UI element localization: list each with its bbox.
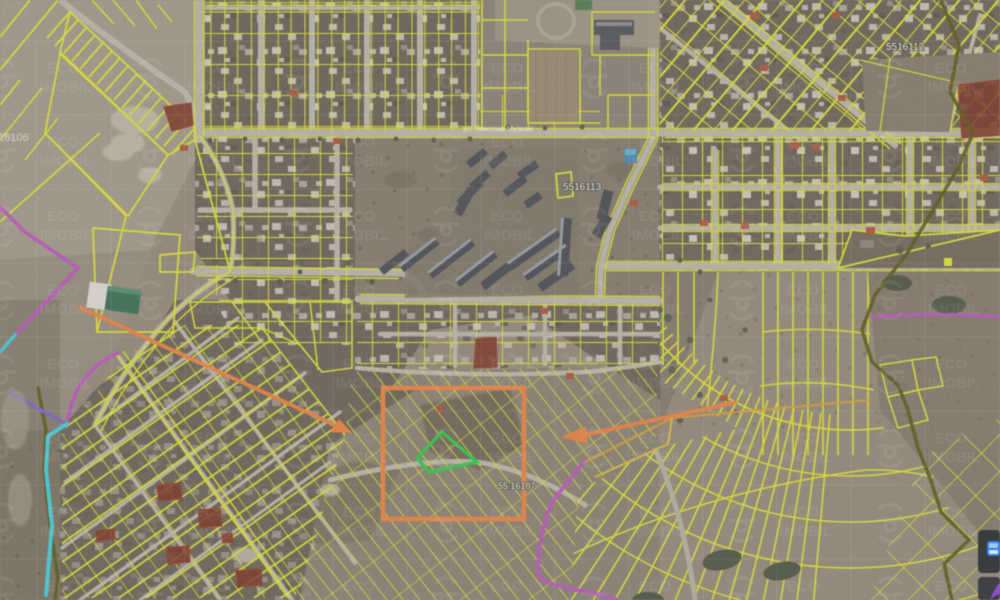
svg-text:IMOBIL: IMOBIL [632,227,685,244]
svg-text:ECO: ECO [491,504,524,521]
svg-text:ECO: ECO [787,134,820,151]
svg-text:IMOBIL: IMOBIL [928,523,981,540]
svg-text:ECO: ECO [343,208,376,225]
svg-text:5516112: 5516112 [886,42,925,53]
svg-text:IMOBIL: IMOBIL [928,79,981,96]
svg-text:IMOBIL: IMOBIL [780,153,833,170]
svg-text:ECO: ECO [935,282,968,299]
svg-text:ECO: ECO [639,504,672,521]
svg-text:ECO: ECO [343,430,376,447]
svg-text:ECO: ECO [787,208,820,225]
svg-text:ECO: ECO [935,356,968,373]
svg-text:IMOBIL: IMOBIL [40,375,93,392]
svg-text:IMOBIL: IMOBIL [484,79,537,96]
svg-text:ECO: ECO [639,430,672,447]
svg-text:IMOBIL: IMOBIL [632,449,685,466]
svg-text:IMOBIL: IMOBIL [336,301,389,318]
svg-text:ECO: ECO [491,430,524,447]
svg-text:ECO: ECO [787,60,820,77]
svg-text:IMOBIL: IMOBIL [336,79,389,96]
svg-text:IMOBIL: IMOBIL [928,153,981,170]
svg-text:ECO: ECO [491,134,524,151]
svg-text:ECO: ECO [787,578,820,595]
svg-text:IMOBIL: IMOBIL [484,301,537,318]
svg-text:IMOBIL: IMOBIL [40,227,93,244]
svg-text:ECO: ECO [935,208,968,225]
svg-text:ECO: ECO [47,60,80,77]
svg-text:IMOBIL: IMOBIL [632,301,685,318]
svg-text:ECO: ECO [47,430,80,447]
svg-text:ECO: ECO [343,60,376,77]
svg-text:IMOBIL: IMOBIL [928,301,981,318]
svg-text:IMOBIL: IMOBIL [780,301,833,318]
svg-text:IMOBIL: IMOBIL [484,449,537,466]
svg-text:ECO: ECO [47,282,80,299]
svg-text:IMOBIL: IMOBIL [40,79,93,96]
svg-text:5516113: 5516113 [563,182,602,193]
svg-text:55:16107: 55:16107 [498,481,536,491]
svg-text:ECO: ECO [195,60,228,77]
svg-text:ECO: ECO [935,504,968,521]
svg-text:IMOBIL: IMOBIL [632,375,685,392]
svg-text:ул. Николая Музыки: ул. Николая Музыки [463,124,533,133]
svg-text:IMOBIL: IMOBIL [780,79,833,96]
svg-text:ECO: ECO [343,134,376,151]
svg-text:ECO: ECO [195,504,228,521]
svg-text:IMOBIL: IMOBIL [336,153,389,170]
svg-text:IMOBIL: IMOBIL [336,227,389,244]
svg-text:ECO: ECO [491,282,524,299]
svg-text:ECO: ECO [787,282,820,299]
svg-text:ECO: ECO [787,504,820,521]
svg-text:ECO: ECO [639,578,672,595]
svg-text:IMOBIL: IMOBIL [632,523,685,540]
svg-text:IMOBIL: IMOBIL [336,449,389,466]
svg-text:IMOBIL: IMOBIL [188,227,241,244]
svg-text:IMOBIL: IMOBIL [484,375,537,392]
svg-text:ECO: ECO [343,356,376,373]
svg-text:ECO: ECO [935,578,968,595]
svg-text:IMOBIL: IMOBIL [780,227,833,244]
svg-text:ECO: ECO [343,282,376,299]
svg-text:IMOBIL: IMOBIL [780,449,833,466]
svg-text:IMOBIL: IMOBIL [484,523,537,540]
svg-text:ECO: ECO [787,356,820,373]
svg-text:IMOBIL: IMOBIL [188,301,241,318]
svg-text:IMOBIL: IMOBIL [632,79,685,96]
svg-text:IMOBIL: IMOBIL [40,449,93,466]
svg-text:ECO: ECO [935,60,968,77]
svg-text:IMOBIL: IMOBIL [484,153,537,170]
svg-text:ECO: ECO [47,134,80,151]
svg-text:IMOBIL: IMOBIL [40,153,93,170]
svg-text:IMOBIL: IMOBIL [928,375,981,392]
svg-text:ECO: ECO [935,430,968,447]
svg-text:IMOBIL: IMOBIL [188,375,241,392]
svg-text:ECO: ECO [639,356,672,373]
svg-text:ECO: ECO [47,578,80,595]
svg-text:ECO: ECO [195,356,228,373]
svg-text:ECO: ECO [195,208,228,225]
svg-text:ECO: ECO [195,282,228,299]
svg-text:ECO: ECO [639,282,672,299]
svg-text:IMOBIL: IMOBIL [780,375,833,392]
svg-text:ECO: ECO [195,430,228,447]
svg-text:IMOBIL: IMOBIL [40,523,93,540]
svg-text:16106: 16106 [0,132,29,144]
svg-text:ECO: ECO [639,208,672,225]
svg-text:IMOBIL: IMOBIL [188,449,241,466]
svg-text:ECO: ECO [491,578,524,595]
svg-text:ECO: ECO [491,356,524,373]
svg-text:ECO: ECO [639,60,672,77]
svg-text:ECO: ECO [935,134,968,151]
svg-text:IMOBIL: IMOBIL [40,301,93,318]
svg-text:IMOBIL: IMOBIL [632,153,685,170]
svg-text:IMOBIL: IMOBIL [188,79,241,96]
svg-text:IMOBIL: IMOBIL [336,523,389,540]
svg-text:IMOBIL: IMOBIL [188,153,241,170]
svg-text:ECO: ECO [47,356,80,373]
svg-text:ECO: ECO [491,208,524,225]
svg-text:IMOBIL: IMOBIL [188,523,241,540]
svg-text:ECO: ECO [195,578,228,595]
svg-text:ECO: ECO [787,430,820,447]
svg-text:IMOBIL: IMOBIL [928,227,981,244]
svg-text:IMOBIL: IMOBIL [928,449,981,466]
svg-text:ECO: ECO [47,504,80,521]
svg-text:ECO: ECO [639,134,672,151]
svg-text:ECO: ECO [343,504,376,521]
svg-text:ECO: ECO [491,60,524,77]
svg-text:IMOBIL: IMOBIL [780,523,833,540]
svg-text:ECO: ECO [343,578,376,595]
svg-text:ECO: ECO [195,134,228,151]
svg-text:IMOBIL: IMOBIL [336,375,389,392]
svg-text:IMOBIL: IMOBIL [484,227,537,244]
svg-text:ECO: ECO [47,208,80,225]
